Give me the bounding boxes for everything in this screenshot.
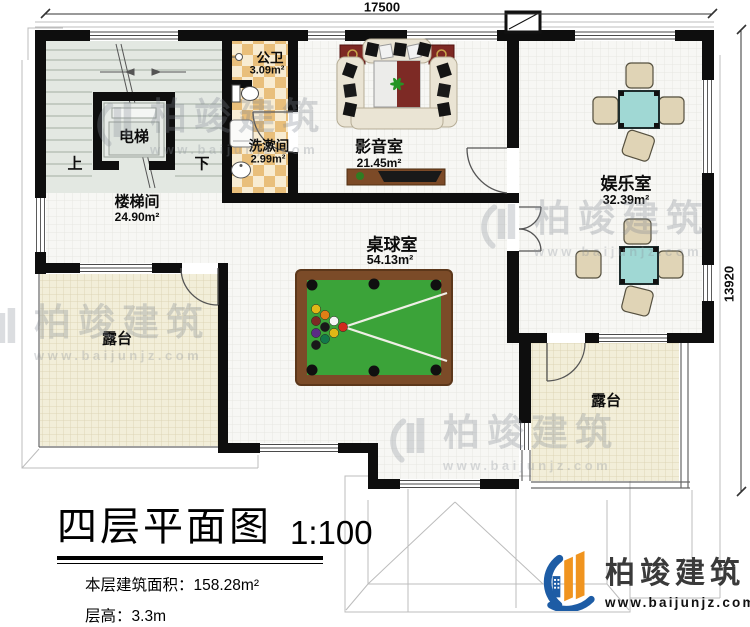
room-area-entertainment: 32.39m² [603,194,650,207]
company-name: 柏竣建筑 [605,548,750,592]
sink-icon [232,162,251,178]
floor-area-value: 158.28m² [194,577,259,594]
terrace-left-floor [40,274,218,446]
room-label-entertainment: 娱乐室 [601,176,652,193]
room-area-stairwell: 24.90m² [115,211,160,223]
room-area-media-room: 21.45m² [357,157,402,169]
room-label-terrace-left: 露台 [102,332,132,347]
floor-height-label: 层高： [85,608,132,625]
company-website: www.baijunjz.com [605,595,750,610]
room-label-elevator: 电梯 [119,130,149,145]
chimney-box [506,12,540,32]
room-area-billiards: 54.13m² [367,254,414,267]
room-label-billiards: 桌球室 [367,237,418,254]
dimension-right-value: 13920 [723,266,736,302]
room-label-public-bath: 公卫 [257,51,284,65]
room-area-public-bath: 3.09m² [250,66,285,77]
dimension-top-value: 17500 [364,1,400,14]
tv-cabinet [347,169,445,185]
sofa-set [337,39,457,129]
company-logo-icon [541,547,599,611]
pool-table [296,270,452,385]
plan-scale: 1:100 [290,514,373,552]
stair-down-label: 下 [194,157,209,172]
dimension-line-right [737,25,746,496]
title-underline [57,556,323,564]
room-label-terrace-right: 露台 [591,394,621,409]
floor-plan-canvas: 17500 13920 公卫 3.09m² 洗漱间 2.99m² 影音室 21.… [0,0,750,627]
coffee-table [374,61,420,107]
terrace-right-floor [531,343,679,481]
stair-up-label: 上 [67,157,82,172]
room-area-washroom: 2.99m² [251,155,286,166]
floor-area-label: 本层建筑面积： [85,577,194,594]
room-label-stairwell: 楼梯间 [114,195,159,210]
company-logo: 柏竣建筑 www.baijunjz.com [541,547,750,611]
floor-height-value: 3.3m [132,608,166,625]
title-block: 四层平面图 1:100 本层建筑面积：158.28m² 层高：3.3m [57,494,373,626]
toilet-icon [232,85,259,102]
room-label-washroom: 洗漱间 [249,139,290,153]
plan-title: 四层平面图 [57,494,272,552]
room-label-media-room: 影音室 [355,140,403,156]
